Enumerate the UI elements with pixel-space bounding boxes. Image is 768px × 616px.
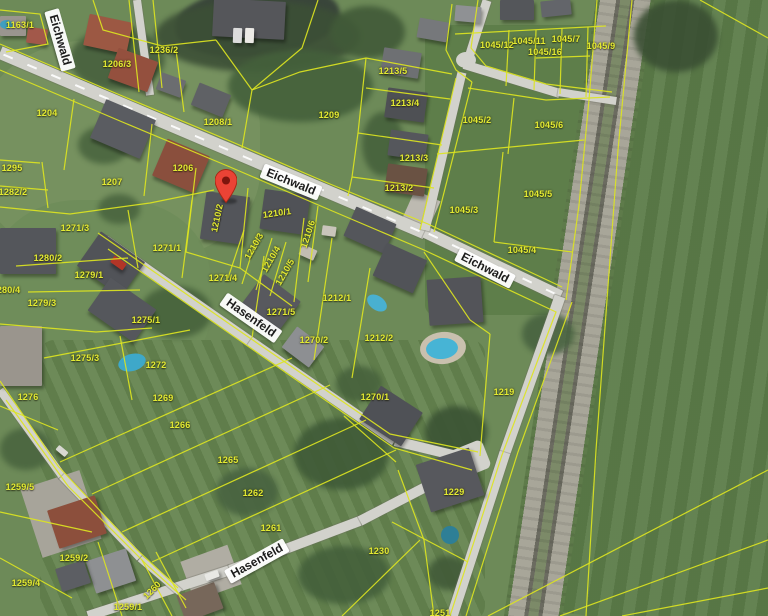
parcel-label: 1262 — [243, 488, 264, 498]
parcel-label: 1270/1 — [361, 392, 390, 402]
parcel-label: 1279/1 — [75, 270, 104, 280]
street-name-sign: Eichwald — [44, 8, 76, 72]
parcel-label: 1209 — [319, 110, 340, 120]
parcel-label: 1280/2 — [34, 253, 63, 263]
parcel-label: 1206 — [173, 163, 194, 173]
satellite-map-canvas[interactable]: 1163/11236/21206/312041208/1120912061207… — [0, 0, 768, 616]
parcel-label: 1259/2 — [60, 553, 89, 563]
parcel-label: 1045/2 — [463, 115, 492, 125]
parcel-label: 1045/3 — [450, 205, 479, 215]
parcel-label: 1212/2 — [365, 333, 394, 343]
parcel-label: 1204 — [37, 108, 58, 118]
label-layer: 1163/11236/21206/312041208/1120912061207… — [0, 0, 768, 616]
parcel-label: 1261 — [261, 523, 282, 533]
parcel-label: 1259/1 — [114, 602, 143, 612]
map-marker[interactable] — [215, 169, 237, 203]
parcel-label: 1230 — [369, 546, 390, 556]
parcel-label: 1045/9 — [587, 41, 616, 51]
parcel-label: 1213/3 — [400, 153, 429, 163]
parcel-label: 1219 — [494, 387, 515, 397]
parcel-label: 1210/5 — [273, 257, 296, 287]
parcel-label: 1259/4 — [12, 578, 41, 588]
street-name-sign: Eichwald — [259, 163, 322, 200]
parcel-label: 1210/2 — [209, 203, 225, 233]
parcel-label: 1210/6 — [299, 219, 317, 249]
parcel-label: 1271/5 — [267, 307, 296, 317]
parcel-label: 1045/5 — [524, 189, 553, 199]
parcel-label: 1163/1 — [6, 20, 34, 30]
parcel-label: 1280/4 — [0, 285, 20, 295]
parcel-label: 1045/12 — [480, 40, 514, 50]
parcel-label: 1271/4 — [209, 273, 238, 283]
parcel-label: 1213/4 — [391, 98, 420, 108]
parcel-label: 1212/1 — [323, 293, 352, 303]
parcel-label: 1295 — [2, 163, 23, 173]
parcel-label: 1272 — [146, 360, 167, 370]
parcel-label: 1266 — [170, 420, 191, 430]
parcel-label: 1207 — [102, 177, 123, 187]
parcel-label: 1279/3 — [28, 298, 57, 308]
street-name-sign: Hasenfeld — [224, 538, 290, 584]
parcel-label: 1275/1 — [132, 315, 161, 325]
parcel-label: 1282/2 — [0, 187, 27, 197]
parcel-label: 1236/2 — [150, 45, 179, 55]
parcel-label: 1210/4 — [259, 244, 282, 274]
parcel-label: 1045/11 — [512, 36, 545, 46]
parcel-label: 1251 — [430, 608, 451, 616]
parcel-label: 1045/16 — [528, 47, 562, 57]
parcel-label: 1275/3 — [71, 353, 100, 363]
parcel-label: 1270/2 — [300, 335, 329, 345]
parcel-label: 1210/3 — [242, 231, 265, 261]
parcel-label: 1213/5 — [379, 66, 408, 76]
parcel-label: 1045/6 — [535, 120, 564, 130]
parcel-label: 1271/3 — [61, 223, 90, 233]
parcel-label: 1259/5 — [6, 482, 35, 492]
parcel-label: 1213/2 — [385, 183, 414, 193]
parcel-label: 1276 — [18, 392, 39, 402]
parcel-label: 1045/4 — [508, 245, 537, 255]
parcel-label: 1208/1 — [204, 117, 233, 127]
parcel-label: 1260 — [141, 579, 163, 601]
street-name-sign: Hasenfeld — [219, 293, 283, 344]
parcel-label: 1265 — [218, 455, 239, 465]
parcel-label: 1229 — [444, 487, 465, 497]
parcel-label: 1271/1 — [153, 243, 182, 253]
parcel-label: 1206/3 — [103, 59, 132, 69]
parcel-label: 1045/7 — [552, 34, 581, 44]
parcel-label: 1210/1 — [262, 206, 292, 220]
parcel-label: 1269 — [153, 393, 174, 403]
